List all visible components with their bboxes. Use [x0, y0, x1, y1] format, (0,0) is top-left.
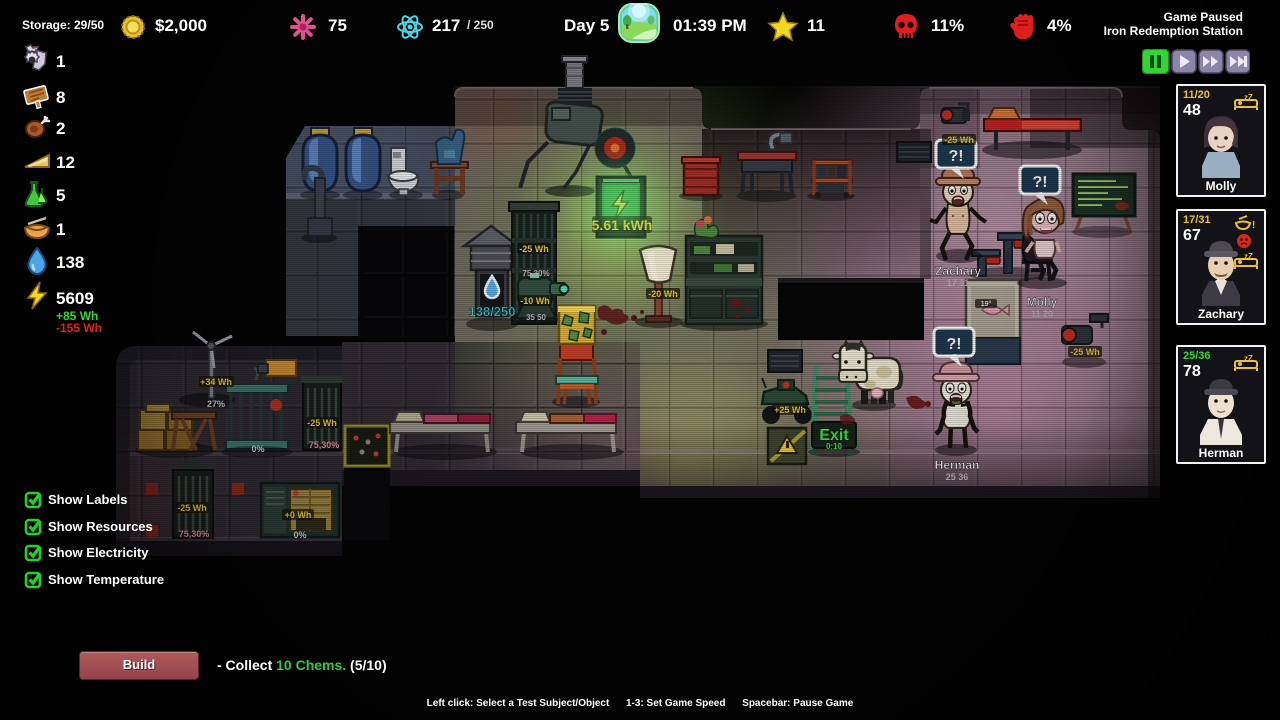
- svg-text:zZ: zZ: [1244, 93, 1253, 102]
- svg-text:!: !: [1252, 220, 1255, 231]
- svg-text:zZ: zZ: [1244, 252, 1253, 261]
- svg-text:zZ: zZ: [1244, 354, 1253, 363]
